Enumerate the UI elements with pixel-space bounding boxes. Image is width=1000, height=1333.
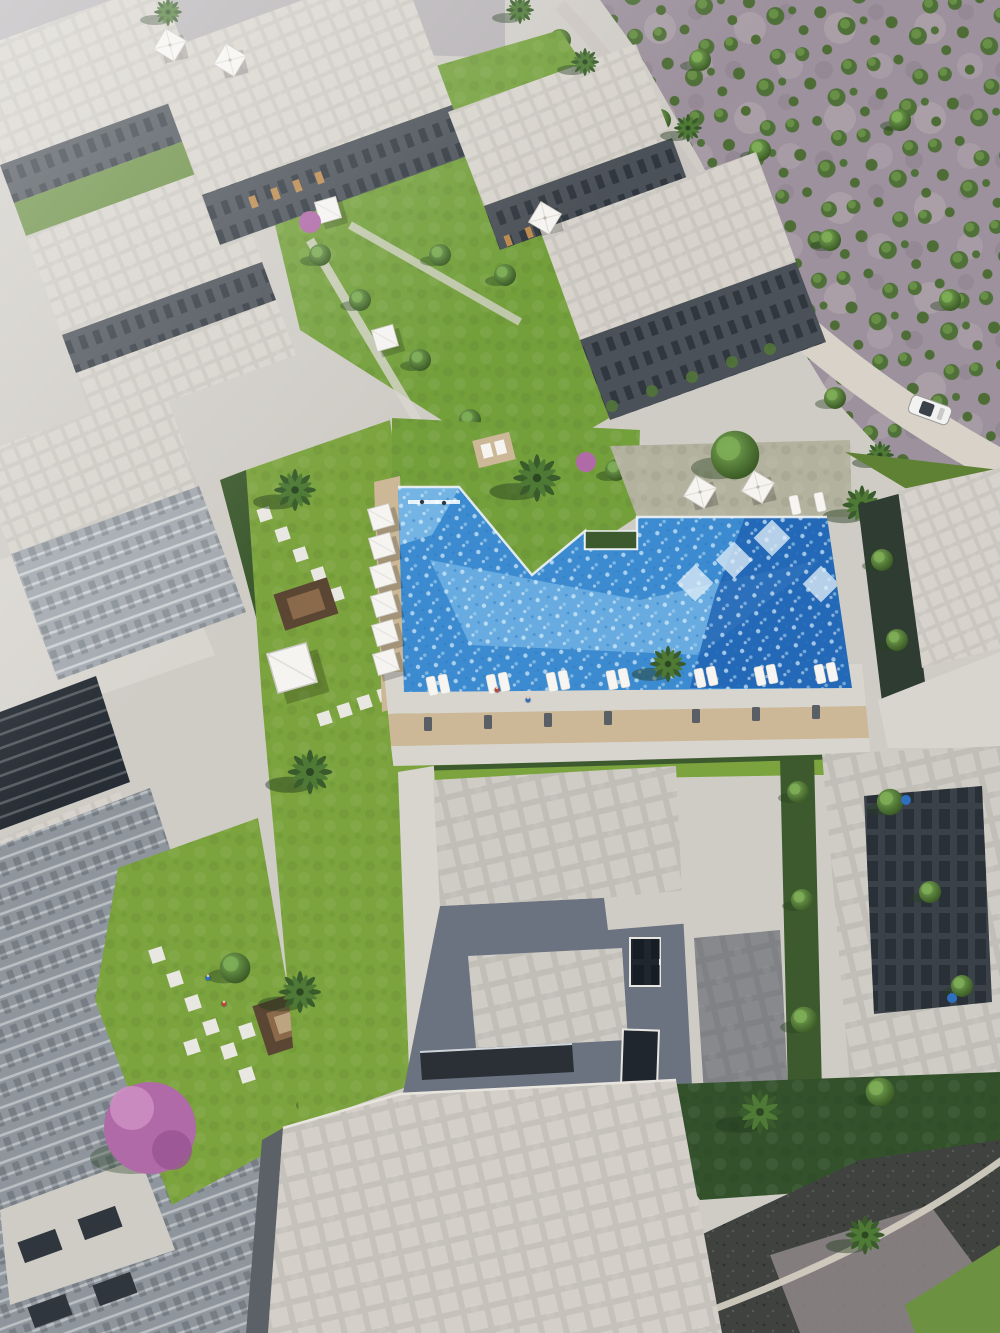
aerial-render: [0, 0, 1000, 1333]
sun-glare-overlay: [0, 0, 1000, 1333]
